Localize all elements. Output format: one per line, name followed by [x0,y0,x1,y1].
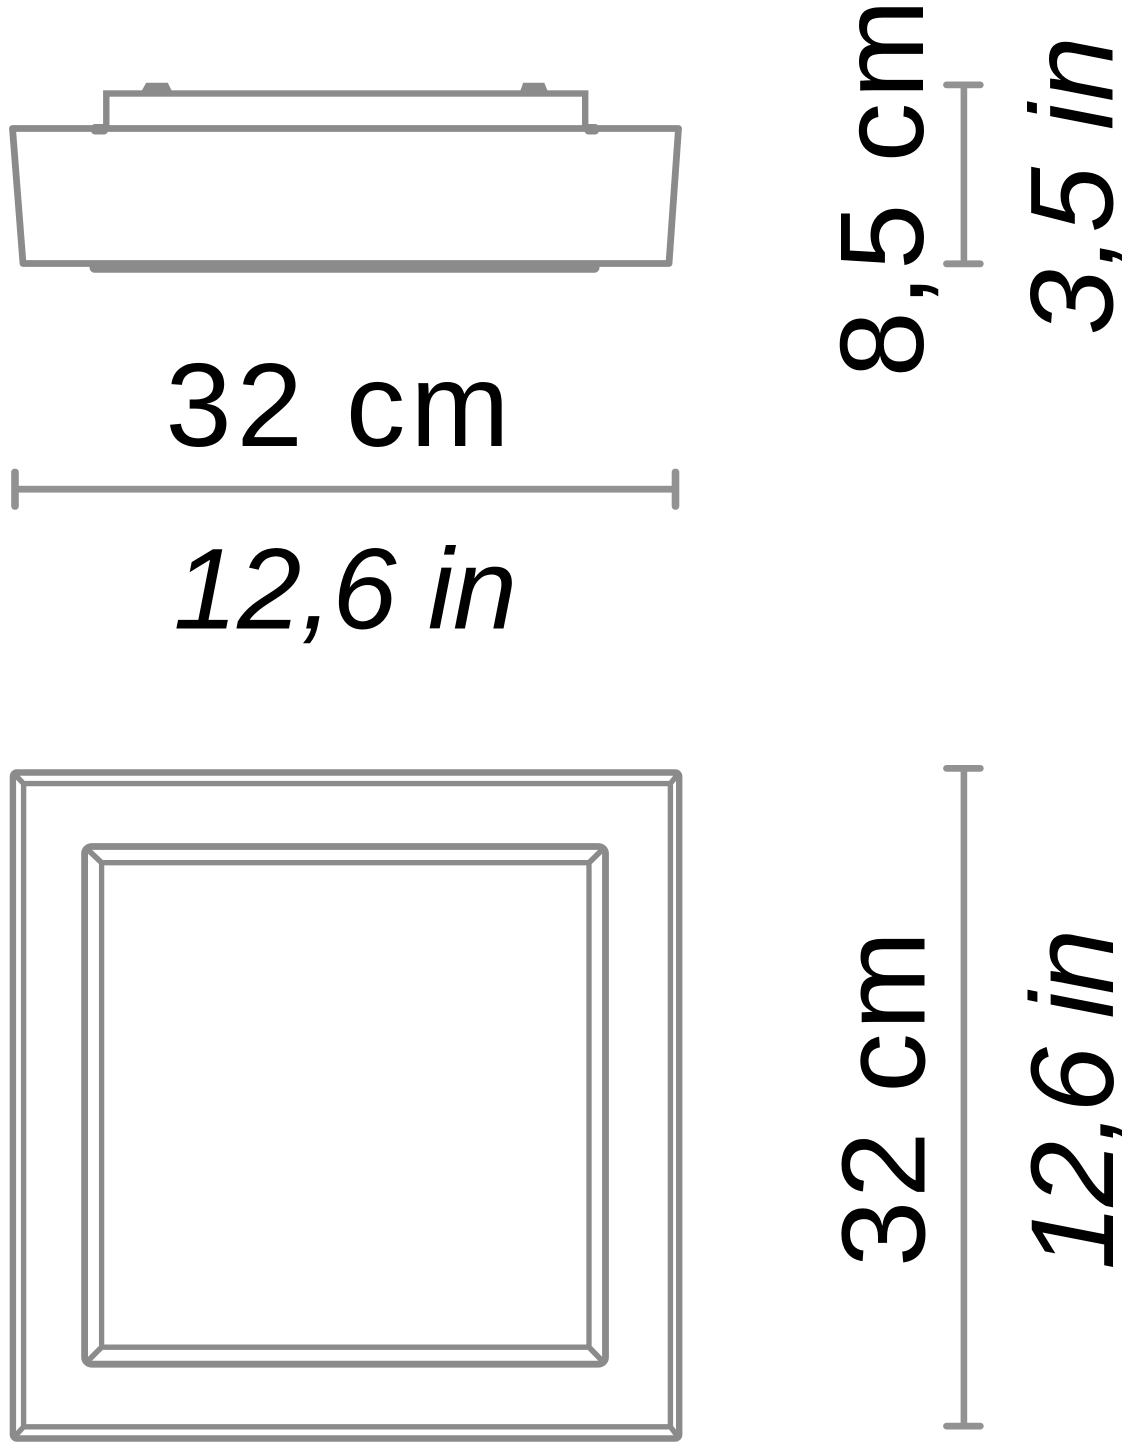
svg-text:12,6 in: 12,6 in [173,525,516,654]
svg-text:8,5 cm: 8,5 cm [816,0,949,378]
svg-text:32 cm: 32 cm [165,339,514,472]
svg-text:12,6 in: 12,6 in [1007,931,1122,1270]
svg-text:3,5 in: 3,5 in [1007,34,1122,335]
svg-text:32 cm: 32 cm [817,928,950,1267]
